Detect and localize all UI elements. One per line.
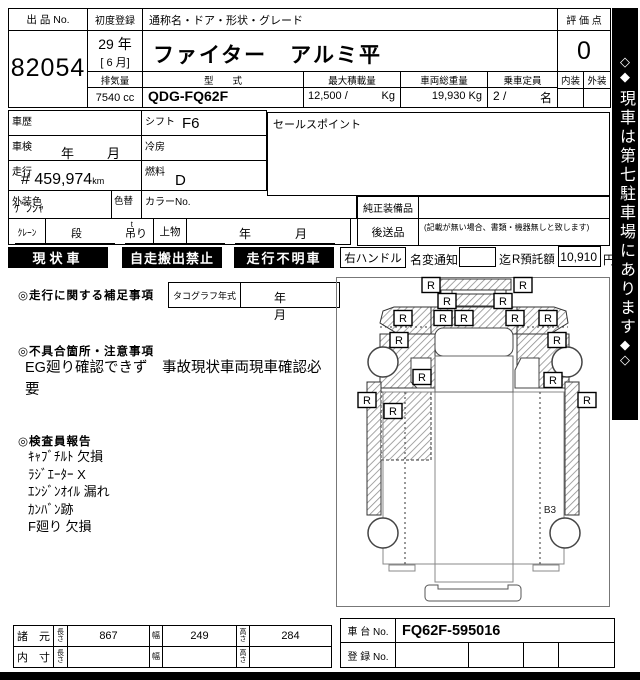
score-label: 評 価 点 [558,9,610,31]
damage-mark-symbol: R [399,313,407,325]
max-load-box: 最大積載量 12,500 / Kg [303,71,401,108]
crane-lift: 吊り [125,225,147,241]
ac-box: 冷房 [141,135,267,161]
deposit-label: R預託額 [512,251,555,267]
auction-sheet: 出 品 No. 82054 初度登録 29 年 [ 6 月] 通称名・ドア・形状… [0,0,640,680]
width-label: 幅 [150,647,163,668]
registration-cell [469,643,524,667]
inner-row-label: 内 寸 [14,647,54,668]
mileage-unit: km [92,176,104,186]
history-box: 車歴 [8,110,142,136]
vehicle-name-value: ファイター アルミ平 [143,31,557,69]
gross-weight-value: 19,930 Kg [401,88,487,109]
inspector-section-label: ◎検査員報告 [18,433,92,449]
capacity-box: 乗車定員 2 / 名 [487,71,558,108]
interior-label: 内装 [558,72,584,88]
damage-mark-symbol: R [389,406,397,418]
width-label: 幅 [150,626,163,647]
registration-label: 登 録 No. [341,643,396,667]
exterior-score-cell [584,89,610,107]
diamond-outline-icon: ◇ [620,352,630,367]
registration-cell [396,643,469,667]
crane-box: ｸﾚｰﾝ 段 t 吊り [8,218,154,245]
later-items-box: 後送品 (記載が無い場合、書類・機器無しと致します) [357,218,610,246]
parking-banner-text: 現車は第七駐車場にあります [613,90,637,337]
capacity-label: 乗車定員 [488,72,557,88]
damage-mark-symbol: R [363,395,371,407]
registration-cell [559,643,614,667]
tachograph-label: タコグラフ年式 [169,283,241,307]
model-code-box: 型 式 QDG-FQ62F [142,71,304,108]
chassis-table: 車 台 No. FQ62F-595016 登 録 No. [340,618,615,668]
displacement-box: 排気量 7540 cc [87,71,143,108]
damage-mark-symbol: R [427,280,435,292]
right-handle-box: 右ハンドル [340,247,406,268]
lot-number-value: 82054 [9,31,87,105]
tachograph-value: 年 月 [274,289,339,323]
shift-value: F6 [182,115,200,132]
status-badge-current-condition: 現状車 [8,247,108,268]
upper-body-value: 年 月 [239,225,323,242]
truck-damage-diagram: RRRRRRRRRRRRRRRR B3 [337,278,609,606]
fuel-label: 燃料 [145,163,165,178]
score-value: 0 [558,31,610,72]
later-items-label: 後送品 [358,219,419,245]
length-label: 長さ [56,629,65,643]
damage-mark-symbol: R [519,280,527,292]
length-label: 長さ [56,650,65,664]
oem-equipment-box: 純正装備品 [357,196,610,219]
parking-banner: ◇ ◆ 現車は第七駐車場にあります ◆ ◇ [612,8,638,420]
vehicle-name-label: 通称名・ドア・形状・グレード [143,9,557,31]
inspection-label: 車検 [12,138,32,153]
color-no-label: カラーNo. [145,193,191,208]
model-code-value: QDG-FQ62F [143,88,303,107]
first-registration-year: 29 年 [88,31,142,54]
vehicle-name-box: 通称名・ドア・形状・グレード ファイター アルミ平 [142,8,558,72]
mileage-prefix: # [21,171,30,188]
damage-mark-symbol: R [460,313,468,325]
spec-width: 249 [163,626,237,647]
right-step-box [515,358,539,388]
name-change-label: 名変通知 [410,251,458,268]
crane-steps: 段 [71,225,82,241]
max-load-label: 最大積載量 [304,72,400,88]
damage-mark-symbol: R [443,296,451,308]
interior-score-cell [558,89,584,107]
damage-mark-symbol: R [583,395,591,407]
lot-number-label: 出 品 No. [9,9,87,31]
max-load-value: 12,500 / [308,90,348,107]
model-code-label: 型 式 [143,72,303,88]
mileage-note-label: ◎走行に関する補足事項 [18,287,154,303]
inspector-line: ｴﾝｼﾞﾝｵｲﾙ 漏れ [28,483,110,501]
exterior-color-box: 外装色 ｹﾞﾝｼｬ [8,190,112,219]
mileage-box: 走行 # 459,974km [8,160,142,191]
damage-mark-symbol: R [395,335,403,347]
bottom-bar [0,672,640,680]
height-label: 高さ [239,650,248,664]
inner-length [68,647,150,668]
gross-weight-label: 車両総重量 [401,72,487,88]
color-change-label: 色替 [114,193,133,207]
registration-cell [524,643,559,667]
capacity-value: 2 / [493,89,506,107]
max-load-unit: Kg [382,90,395,107]
inspector-report: ｷｬﾌﾞﾁﾙﾄ 欠損 ﾗｼﾞｴｰﾀｰ X ｴﾝｼﾞﾝｵｲﾙ 漏れ ｶﾝﾊﾞﾝ跡 … [28,448,110,536]
damage-mark-symbol: R [418,372,426,384]
chassis-value: FQ62F-595016 [396,619,614,643]
until-label: 迄 [499,251,511,268]
chassis-label: 車 台 No. [341,619,396,643]
fuel-value: D [175,172,186,189]
crane-label: ｸﾚｰﾝ [9,219,46,244]
capacity-unit: 名 [540,89,552,107]
deposit-value-box: 10,910 [558,246,601,267]
height-label: 高さ [239,629,248,643]
inspector-line: ｷｬﾌﾞﾁﾙﾄ 欠損 [28,448,110,466]
displacement-value: 7540 cc [88,88,142,107]
name-change-date-box [459,247,496,267]
spec-height: 284 [250,626,331,647]
deposit-unit: 円 [603,251,615,268]
inspector-line: ｶﾝﾊﾞﾝ跡 [28,501,110,519]
fuel-box: 燃料 D [141,160,267,191]
history-label: 車歴 [12,113,32,128]
exterior-color-value: ｹﾞﾝｼｬ [14,199,44,216]
inspector-line: ﾗｼﾞｴｰﾀｰ X [28,466,110,484]
inner-width [163,647,237,668]
inspector-line: F廻り 欠損 [28,518,110,536]
spec-row-label: 諸 元 [14,626,54,647]
diamond-filled-icon: ◆ [620,69,630,84]
later-items-note: (記載が無い場合、書類・機器無しと致します) [424,222,589,233]
displacement-label: 排気量 [88,72,142,88]
divider [125,243,225,245]
lot-number-box: 出 品 No. 82054 [8,8,88,108]
dimensions-table: 諸 元 長さ 867 幅 249 高さ 284 内 寸 長さ 幅 高さ [13,625,332,668]
score-box: 評 価 点 0 内装 外装 [557,8,611,108]
cab-body [435,356,513,392]
sales-point-box: セールスポイント [267,112,610,196]
shift-label: シフト [145,113,175,128]
exterior-label: 外装 [584,72,610,88]
diamond-outline-icon: ◇ [620,54,630,69]
upper-body-box: 上物 年 月 [153,218,351,245]
first-registration-month: [ 6 月] [88,54,142,70]
oem-equipment-label: 純正装備品 [358,197,419,218]
sales-point-label: セールスポイント [273,116,361,132]
tachograph-box: タコグラフ年式 年 月 [168,282,340,308]
damage-mark-symbol: R [511,313,519,325]
shift-box: シフト F6 [141,110,267,136]
defect-line: EG廻り確認できず 事故現状車両現車確認必 [25,357,330,379]
first-registration-box: 初度登録 29 年 [ 6 月] [87,8,143,72]
defect-line: 要 [25,379,330,401]
damage-mark-symbol: R [544,313,552,325]
divider [235,243,335,245]
inner-height [250,647,331,668]
mileage-value: 459,974 [34,171,92,188]
color-change-box: 色替 [111,190,142,219]
damage-diagram-panel: RRRRRRRRRRRRRRRR B3 [336,277,610,607]
damage-mark-symbol: R [439,313,447,325]
spec-length: 867 [68,626,150,647]
defect-text: EG廻り確認できず 事故現状車両現車確認必 要 [25,357,330,401]
inspection-box: 車検 年 月 [8,135,142,161]
status-badge-unknown-mileage: 走行不明車 [234,247,334,268]
damage-mark-symbol: R [549,375,557,387]
gross-weight-box: 車両総重量 19,930 Kg [400,71,488,108]
first-registration-label: 初度登録 [88,9,142,31]
upper-body-label: 上物 [154,219,187,244]
divider [15,243,115,245]
zone-label: B3 [544,505,557,516]
windshield [435,328,513,356]
damage-mark-symbol: R [499,296,507,308]
damage-mark-symbol: R [553,335,561,347]
status-badge-no-self-drive: 自走搬出禁止 [122,247,222,268]
diamond-filled-icon: ◆ [620,337,630,352]
ac-label: 冷房 [145,138,165,153]
